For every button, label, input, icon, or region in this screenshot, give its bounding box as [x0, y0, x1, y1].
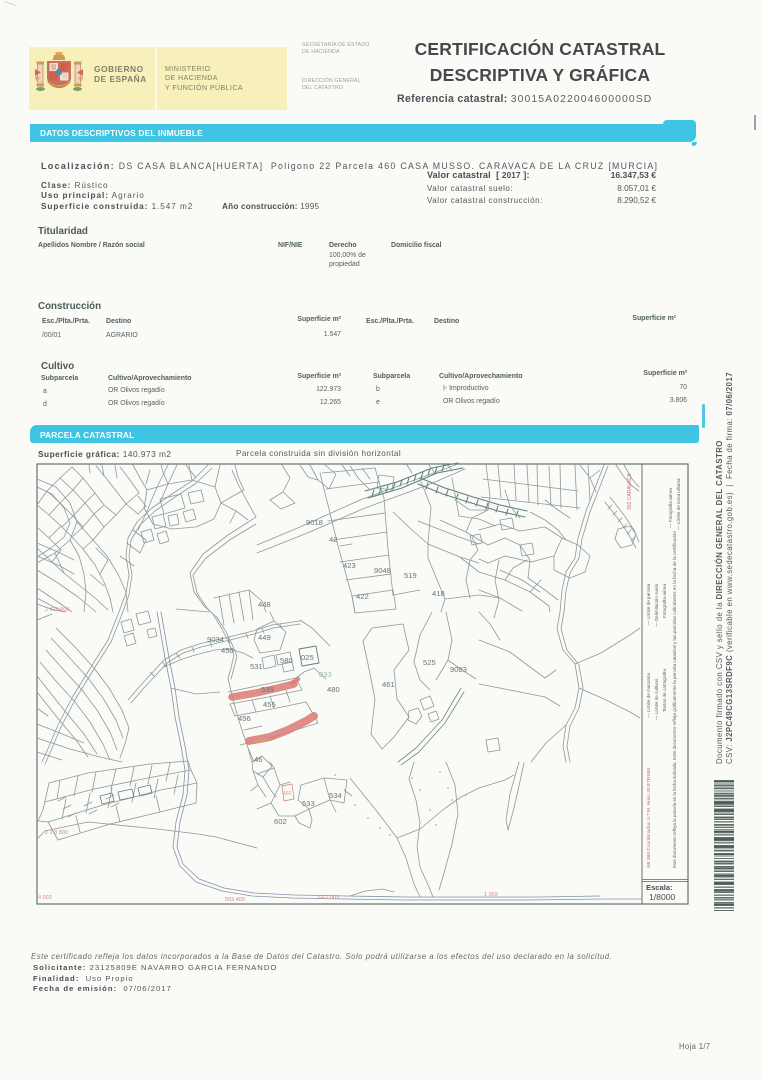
- svg-text:534: 534: [329, 791, 342, 800]
- svg-text:— Fotografía aérea: — Fotografía aérea: [668, 488, 673, 528]
- svg-text:— Límite de parcela: — Límite de parcela: [646, 583, 651, 625]
- svg-text:9034: 9034: [207, 635, 224, 644]
- svg-text:42: 42: [329, 535, 337, 544]
- svg-text:531: 531: [250, 662, 263, 671]
- svg-text:302 CARAVACA: 302 CARAVACA: [627, 473, 633, 510]
- svg-text:449: 449: [258, 633, 271, 642]
- svg-text:— Delimitación suelo: — Delimitación suelo: [654, 583, 659, 627]
- svg-text:466: 466: [283, 791, 292, 797]
- svg-text:519: 519: [404, 571, 417, 580]
- svg-text:2 410 800: 2 410 800: [45, 607, 69, 613]
- svg-text:Este documento refleja gráfica: Este documento refleja gráficamente la p…: [672, 531, 677, 760]
- svg-text:Fotografía aérea: Fotografía aérea: [662, 584, 667, 618]
- svg-text:461: 461: [382, 680, 395, 689]
- svg-text:— Límite de manzana: — Límite de manzana: [646, 673, 651, 718]
- svg-text:NE 988 Coordenadas U.T.M. Huso: NE 988 Coordenadas U.T.M. Huso 30 ETRS89: [646, 768, 652, 868]
- svg-text:602: 602: [274, 817, 287, 826]
- svg-text:— Límite de cultivos: — Límite de cultivos: [654, 678, 659, 720]
- svg-text:450: 450: [221, 646, 234, 655]
- svg-text:539: 539: [261, 685, 274, 694]
- svg-text:422: 422: [356, 592, 369, 601]
- svg-text:46: 46: [254, 755, 262, 764]
- svg-text:525: 525: [423, 658, 436, 667]
- svg-text:9018: 9018: [306, 518, 323, 527]
- svg-text:503 400: 503 400: [225, 897, 245, 903]
- svg-text:480: 480: [327, 685, 340, 694]
- svg-text:033: 033: [319, 670, 332, 679]
- svg-text:418: 418: [432, 589, 445, 598]
- svg-text:9048: 9048: [374, 566, 391, 575]
- svg-text:Textos de cartografía: Textos de cartografía: [662, 669, 667, 712]
- svg-text:1 003: 1 003: [484, 892, 498, 898]
- svg-text:025: 025: [301, 653, 314, 662]
- svg-text:4 002: 4 002: [38, 895, 52, 901]
- svg-text:Escala:: Escala:: [646, 883, 673, 892]
- svg-text:455: 455: [263, 700, 276, 709]
- svg-text:2 1 8 800: 2 1 8 800: [45, 830, 68, 836]
- svg-text:533: 533: [302, 799, 315, 808]
- svg-text:456: 456: [238, 714, 251, 723]
- svg-text:EE1 003: EE1 003: [318, 895, 339, 901]
- svg-text:— Límite de zona urbana: — Límite de zona urbana: [676, 478, 681, 530]
- svg-text:Este documento refleja la parc: Este documento refleja la parcela en la …: [672, 762, 677, 868]
- svg-text:1/8000: 1/8000: [649, 892, 676, 902]
- svg-text:580: 580: [280, 656, 293, 665]
- svg-text:448: 448: [258, 600, 271, 609]
- svg-text:9083: 9083: [450, 665, 467, 674]
- svg-text:423: 423: [343, 561, 356, 570]
